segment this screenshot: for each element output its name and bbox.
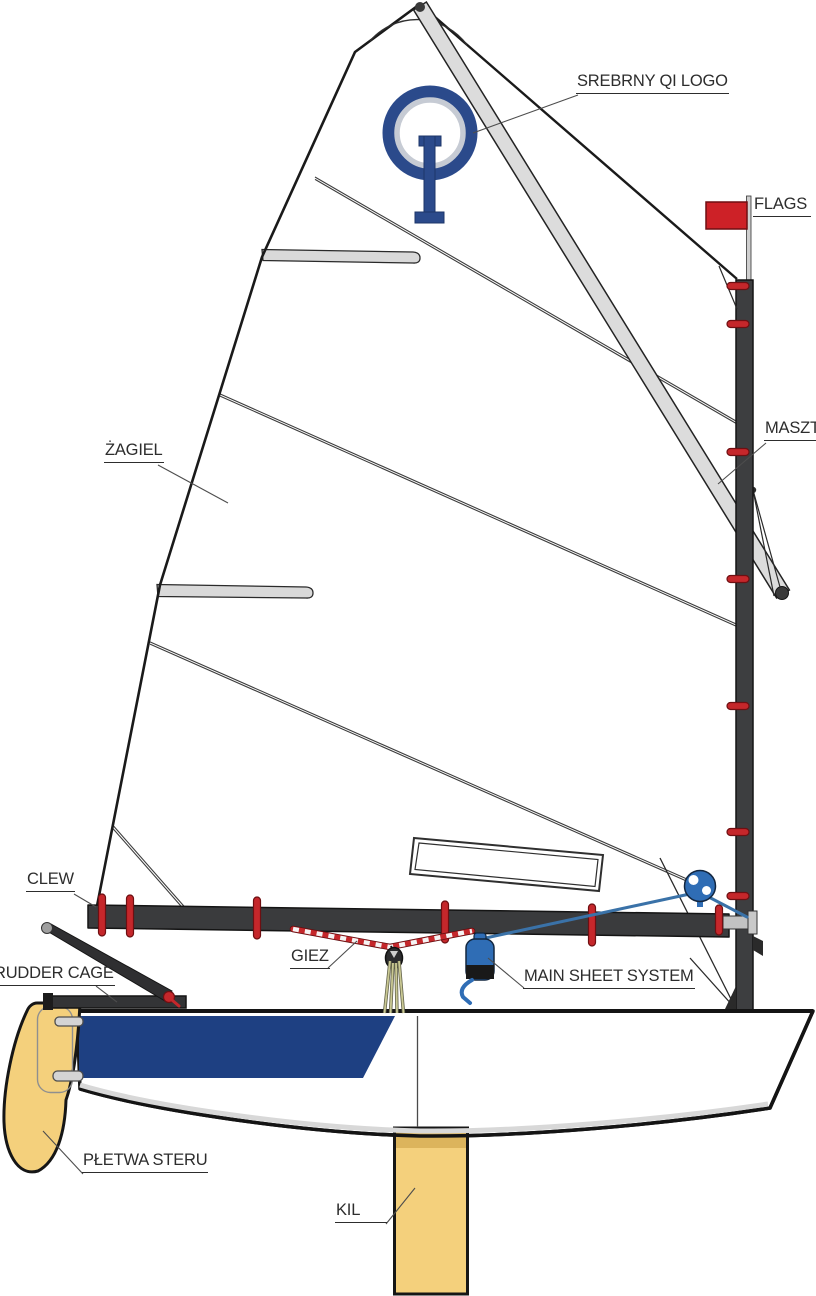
- sprit-peak-cap: [415, 2, 425, 12]
- mast-cleat: [753, 936, 763, 956]
- batten-lower: [157, 585, 313, 599]
- label-keel: KIL: [335, 1201, 387, 1223]
- tiller-tip-cap: [42, 923, 53, 934]
- label-giez: GIEZ: [290, 947, 330, 969]
- mast: [736, 280, 753, 1012]
- batten-upper: [262, 250, 420, 264]
- mainsheet-tackle-lines: [385, 961, 404, 1013]
- label-logo: SREBRNY QI LOGO: [576, 72, 729, 94]
- leader-giez: [328, 941, 357, 968]
- sail: [97, 4, 738, 910]
- mainsheet-block-cylinder: [462, 933, 494, 1003]
- block-hook: [462, 980, 472, 1003]
- boom: [88, 905, 729, 937]
- daggerboard: [395, 1128, 468, 1294]
- hull-blue-stripe: [79, 1016, 395, 1078]
- label-mast: MASZT: [764, 419, 816, 441]
- label-rudder-blade: PŁETWA STERU: [82, 1151, 208, 1173]
- rudder-blade: [4, 1003, 80, 1172]
- leader-clew: [74, 894, 96, 907]
- label-main-sheet-system: MAIN SHEET SYSTEM: [523, 967, 695, 989]
- diagram-drawing: [0, 0, 816, 1296]
- optimist-parts-diagram: SREBRNY QI LOGO FLAGS MASZT ŻAGIEL CLEW …: [0, 0, 816, 1296]
- sprit-tip-cap: [776, 587, 789, 600]
- label-rudder-cage: RUDDER CAGE: [0, 964, 115, 986]
- gooseneck-tab: [748, 911, 757, 934]
- tiller-extension: [42, 924, 172, 1001]
- flag: [706, 202, 747, 229]
- rudder-cage-end-cap: [43, 993, 53, 1010]
- boom-end-pin: [716, 905, 723, 935]
- label-clew: CLEW: [26, 870, 75, 892]
- label-flags: FLAGS: [753, 195, 811, 217]
- sail-body: [97, 4, 738, 906]
- label-sail: ŻAGIEL: [104, 441, 164, 463]
